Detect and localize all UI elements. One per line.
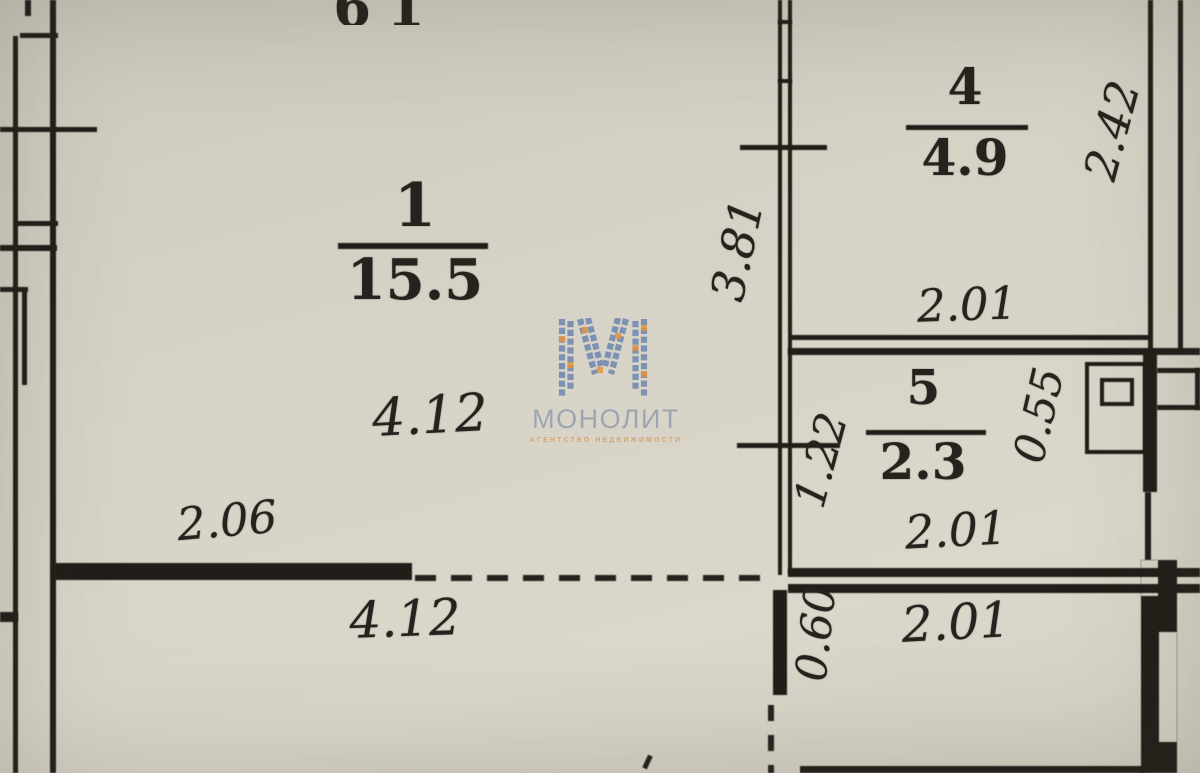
right-wall-line-b <box>1178 0 1183 352</box>
corridor-wall-line-a <box>778 0 782 575</box>
room4-room5-divider-wall-b <box>788 348 1200 355</box>
room4-number: 4 <box>900 62 1030 112</box>
left-wall-stub-mid <box>22 290 27 385</box>
room5-number: 5 <box>856 364 991 412</box>
right-wall-line-a <box>1148 0 1153 352</box>
lower-right-wall-a <box>788 568 1200 577</box>
shaft-right-wall-edge <box>1195 368 1200 410</box>
dim-room1-width-top: 4.12 <box>359 386 502 445</box>
monolit-logo-icon <box>557 318 649 398</box>
bottom-edge-wall <box>800 766 1145 773</box>
monolit-watermark: МОНОЛИТ АГЕНТСТВО НЕДВИЖИМОСТИ <box>523 318 689 452</box>
left-top-wall-stub <box>25 0 31 16</box>
dim-lower-room-width: 2.01 <box>887 594 1025 650</box>
dim-lower-wall-height: 0.60 <box>789 567 845 701</box>
floor-plan: 61 1 15.5 4.12 2.06 4.12 3.81 1.22 4 4.9… <box>0 0 1200 773</box>
corridor-wall-rung-b <box>778 79 792 83</box>
dim-room5-width: 2.01 <box>889 504 1023 557</box>
shaft-right-wall-bottom <box>1157 405 1200 410</box>
dim-corridor-lower: 1.22 <box>784 392 859 529</box>
corridor-wall-rung-a <box>778 20 792 24</box>
room1-number: 1 <box>350 176 480 236</box>
dim-room4-height: 2.42 <box>1073 62 1150 199</box>
vent-shaft-box <box>1085 362 1147 454</box>
corridor-wall-dashed-lower <box>768 705 774 773</box>
left-window-connector-b <box>0 245 57 251</box>
shaft-right-wall-top <box>1157 368 1200 373</box>
left-window-connector-a <box>17 221 58 226</box>
vent-shaft-inner-detail <box>1100 378 1134 406</box>
room1-area: 15.5 <box>340 252 490 308</box>
corridor-wall-thick-lower <box>773 590 787 695</box>
right-wall-lower-line <box>1145 492 1151 568</box>
small-plan-mark <box>642 755 652 770</box>
dim-room1-width-bottom: 4.12 <box>334 592 476 647</box>
monolit-brand-text: МОНОЛИТ <box>523 404 689 435</box>
left-outer-wall <box>13 36 18 773</box>
left-top-connector-wall <box>20 33 58 38</box>
left-inner-wall <box>50 0 56 773</box>
left-dimension-tick <box>0 127 97 132</box>
right-masonry-notch-a <box>1159 632 1177 742</box>
room1-bottom-wall <box>55 563 412 580</box>
left-short-wall <box>0 612 18 622</box>
room4-room5-divider-wall-a <box>790 335 1150 340</box>
dim-shaft-height: 0.55 <box>1004 347 1075 483</box>
monolit-subtitle-text: АГЕНТСТВО НЕДВИЖИМОСТИ <box>523 437 689 444</box>
top-partial-label: 61 <box>322 0 452 25</box>
top-partial-label-clip: 61 <box>322 0 452 25</box>
dim-room1-wall-segment: 2.06 <box>160 492 293 548</box>
room4-area: 4.9 <box>898 133 1032 183</box>
dim-corridor-height: 3.81 <box>701 182 773 319</box>
room5-area: 2.3 <box>850 437 996 487</box>
dim-room4-width: 2.01 <box>901 280 1032 330</box>
corridor-tick-upper <box>740 145 827 150</box>
room1-bottom-dashed-line <box>415 575 772 581</box>
